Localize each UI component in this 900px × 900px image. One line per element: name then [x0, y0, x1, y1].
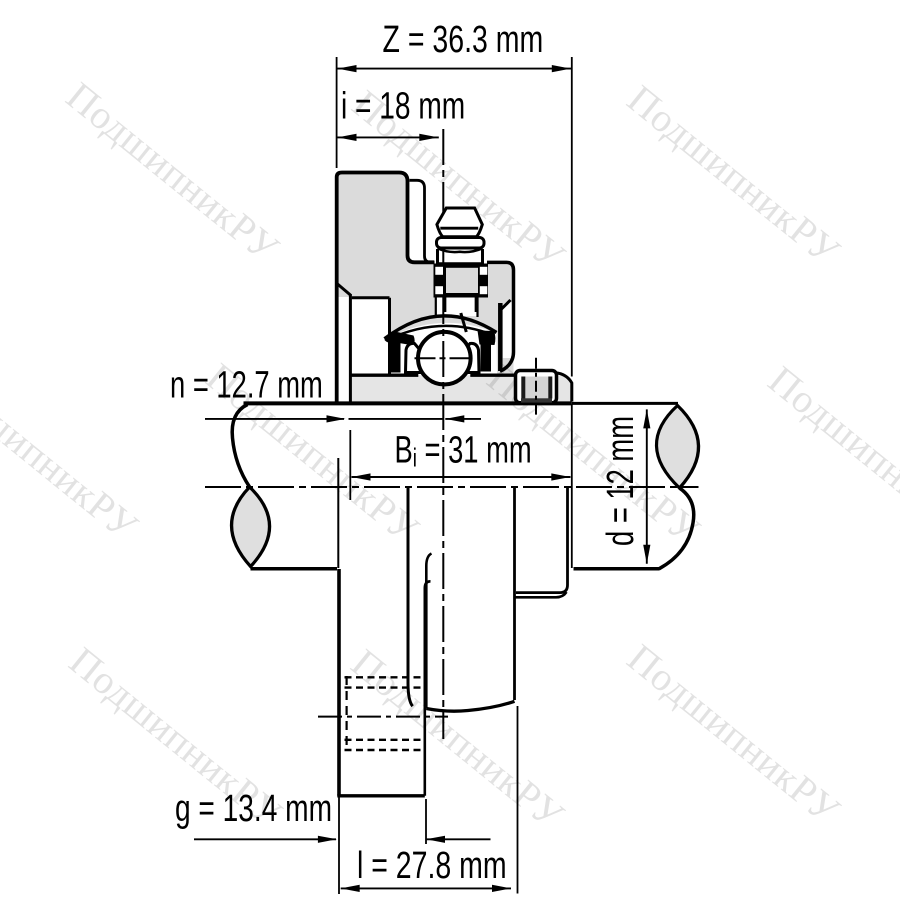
svg-text:d = 12 mm: d = 12 mm — [600, 416, 642, 546]
svg-text:Z = 36.3 mm: Z = 36.3 mm — [383, 19, 544, 61]
svg-text:g = 13.4 mm: g = 13.4 mm — [175, 788, 332, 830]
svg-text:n = 12.7 mm: n = 12.7 mm — [170, 364, 323, 406]
svg-text:i = 18 mm: i = 18 mm — [341, 86, 465, 128]
svg-text:l = 27.8 mm: l = 27.8 mm — [357, 845, 507, 887]
